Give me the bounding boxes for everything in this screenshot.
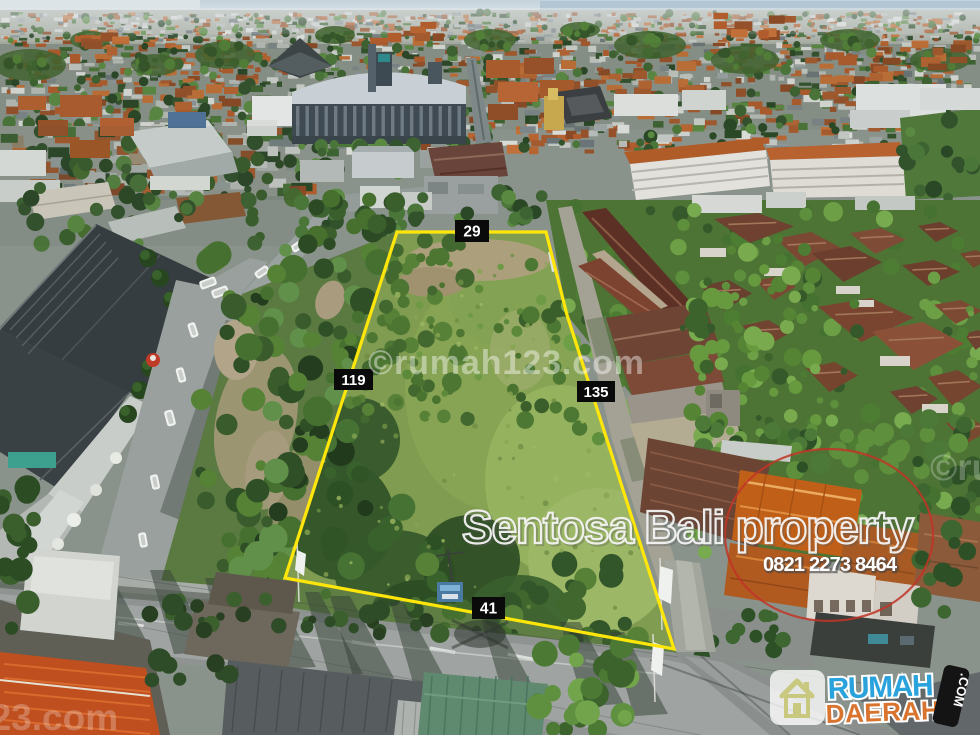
svg-text:DAERAH: DAERAH (825, 695, 940, 729)
svg-text:29: 29 (463, 224, 481, 241)
svg-text:0821 2273 8464: 0821 2273 8464 (763, 554, 898, 576)
svg-text:©rumah123.com: ©rumah123.com (368, 344, 644, 382)
svg-text:135: 135 (583, 384, 608, 401)
svg-text:Sentosa Bali property: Sentosa Bali property (462, 501, 914, 553)
svg-text:119: 119 (341, 372, 365, 389)
svg-text:41: 41 (480, 601, 498, 618)
svg-text:123.com: 123.com (0, 697, 118, 735)
svg-text:©ru: ©ru (930, 447, 980, 488)
